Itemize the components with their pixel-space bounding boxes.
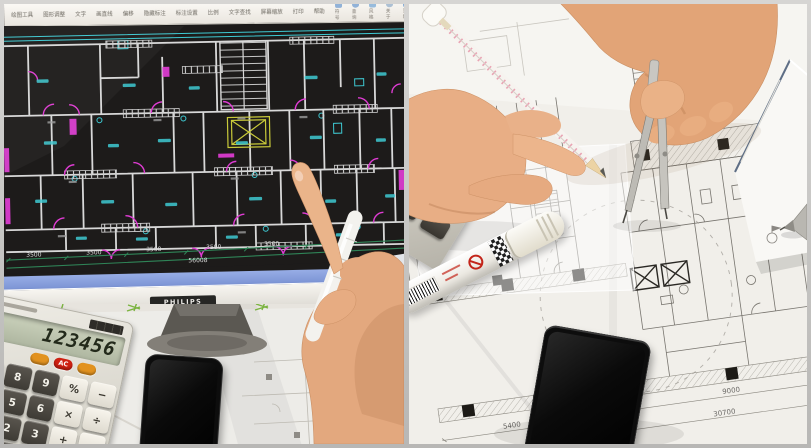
right-hand [559, 4, 777, 147]
drafting-hands [409, 4, 807, 444]
pointing-hand [4, 4, 404, 444]
left-hand [409, 89, 586, 223]
photo-collage-frame: 绘图工具 图形调整 文字 画直线 偏移 隐藏标注 标注设置 比例 文字查找 屏幕… [0, 0, 811, 448]
compass-needle [665, 208, 667, 219]
left-photo-monitor-scene: 绘图工具 图形调整 文字 画直线 偏移 隐藏标注 标注设置 比例 文字查找 屏幕… [4, 4, 404, 444]
ballpoint-pen-tip [780, 204, 807, 240]
compass-needle [623, 210, 627, 223]
right-photo-blueprint-scene: 5400 9000 30700 [409, 4, 807, 444]
